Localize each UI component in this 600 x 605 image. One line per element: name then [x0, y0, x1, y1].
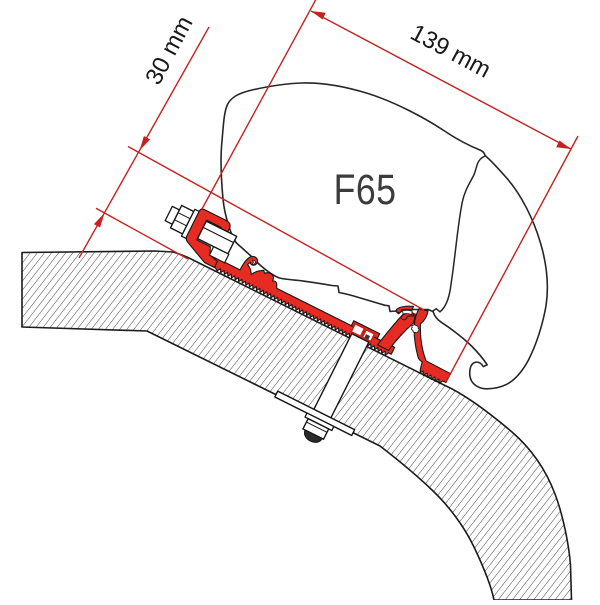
svg-text:F65: F65 [334, 166, 397, 214]
